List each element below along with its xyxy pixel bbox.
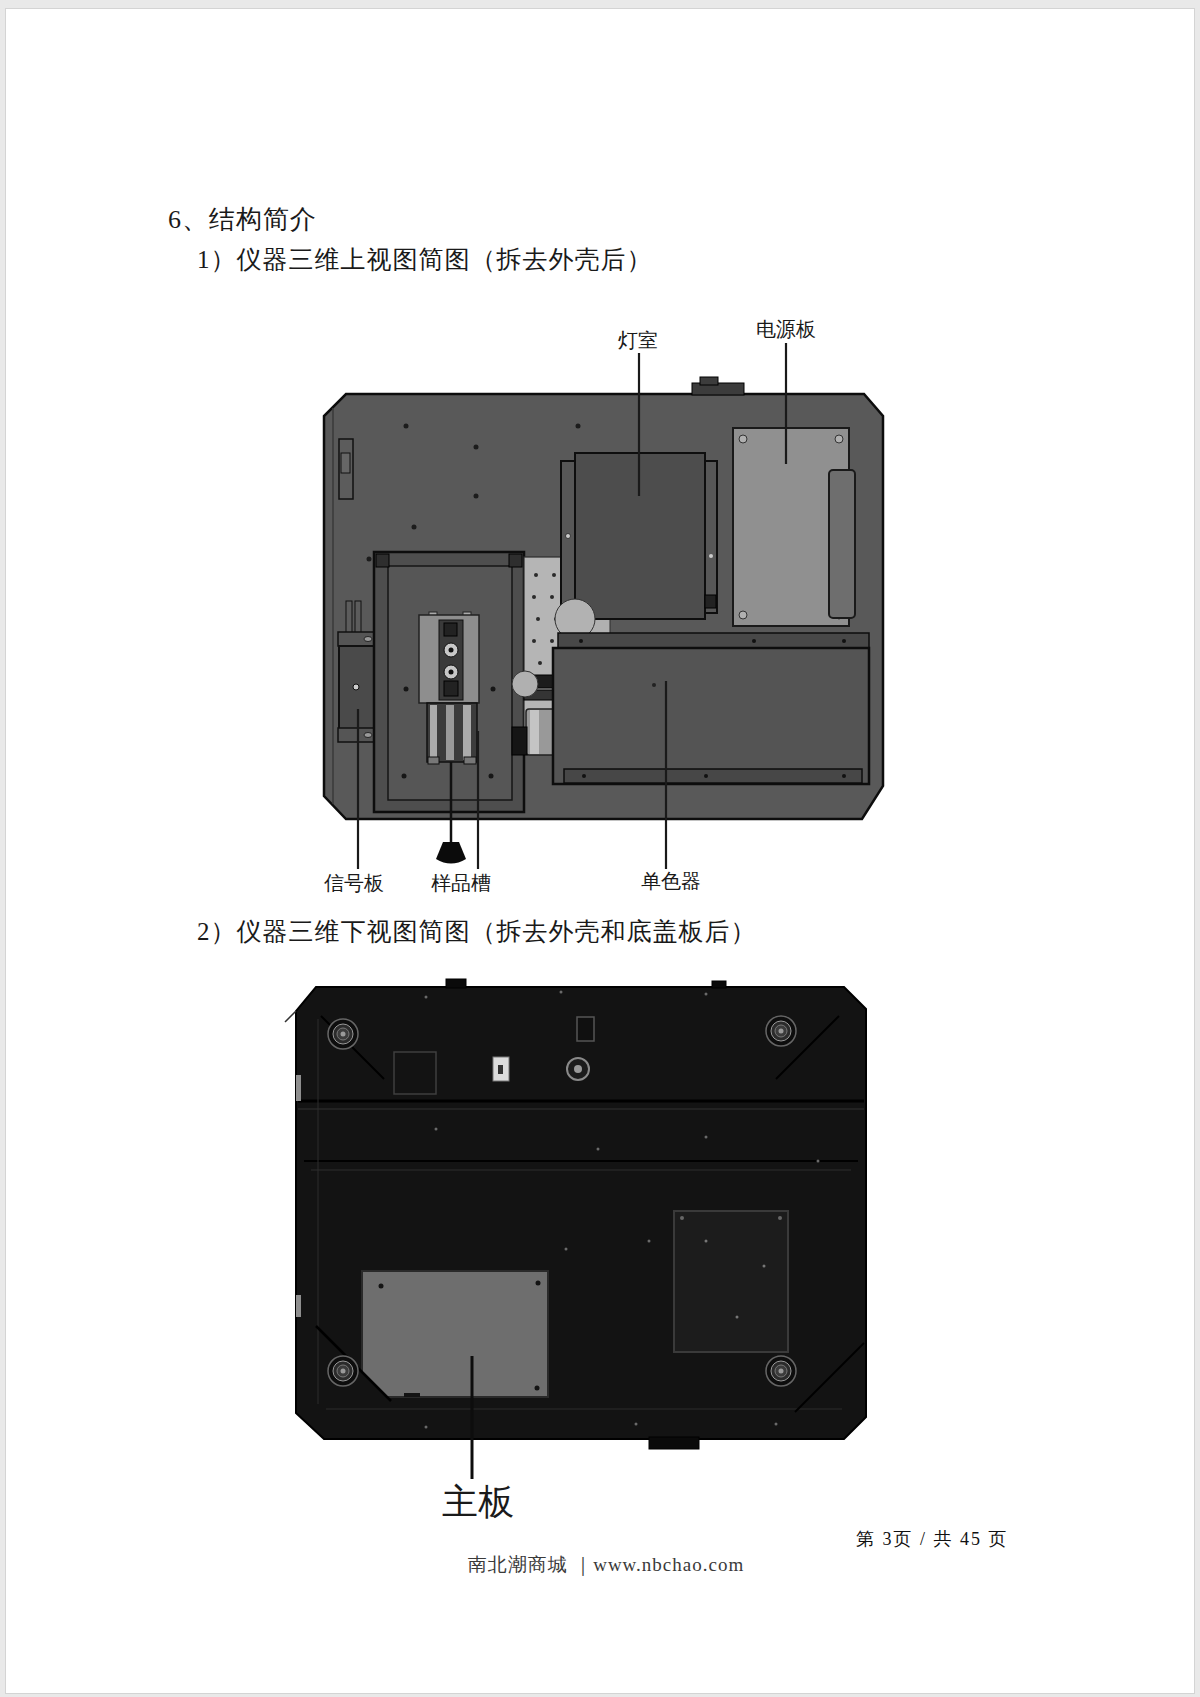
label-monochromator: 单色器 <box>641 870 701 892</box>
section-heading: 6、结构简介 <box>168 202 317 237</box>
foot-top-left <box>328 1019 358 1049</box>
lens-port <box>512 671 538 697</box>
lamp-house-block <box>555 453 717 639</box>
drain-funnel <box>436 842 466 864</box>
foot-bottom-left <box>328 1356 358 1386</box>
subheading-top-view: 1）仪器三维上视图简图（拆去外壳后） <box>197 243 653 276</box>
screenshot-canvas: 6、结构简介 1）仪器三维上视图简图（拆去外壳后） 2）仪器三维下视图简图（拆去… <box>0 0 1200 1697</box>
figure-top-view: 灯室 电源板 信号板 样品槽 单色器 <box>281 304 891 904</box>
left-bracket-top <box>339 439 353 499</box>
power-side-panel <box>829 470 855 618</box>
label-main-board: 主板 <box>442 1482 514 1522</box>
power-board-block <box>733 428 855 626</box>
subheading-bottom-view: 2）仪器三维下视图简图（拆去外壳和底盖板后） <box>197 915 757 948</box>
label-power-board: 电源板 <box>756 318 816 340</box>
foot-top-right <box>766 1016 796 1046</box>
foot-bottom-right <box>766 1356 796 1386</box>
label-sample-slot: 样品槽 <box>431 872 491 894</box>
watermark-text: 南北潮商城 ｜www.nbchao.com <box>6 1552 1200 1578</box>
bottom-tab <box>649 1437 699 1449</box>
sample-holder-assembly <box>419 612 479 864</box>
small-cutout <box>577 1017 594 1041</box>
right-inner-panel <box>674 1211 788 1352</box>
page-indicator: 第 3页 / 共 45 页 <box>856 1527 1009 1551</box>
figure-bottom-view: 主板 <box>264 961 889 1536</box>
label-signal-board: 信号板 <box>324 872 384 894</box>
document-page: 6、结构简介 1）仪器三维上视图简图（拆去外壳后） 2）仪器三维下视图简图（拆去… <box>5 8 1195 1694</box>
monochromator-block <box>553 633 869 784</box>
label-lamp-room: 灯室 <box>618 329 658 351</box>
